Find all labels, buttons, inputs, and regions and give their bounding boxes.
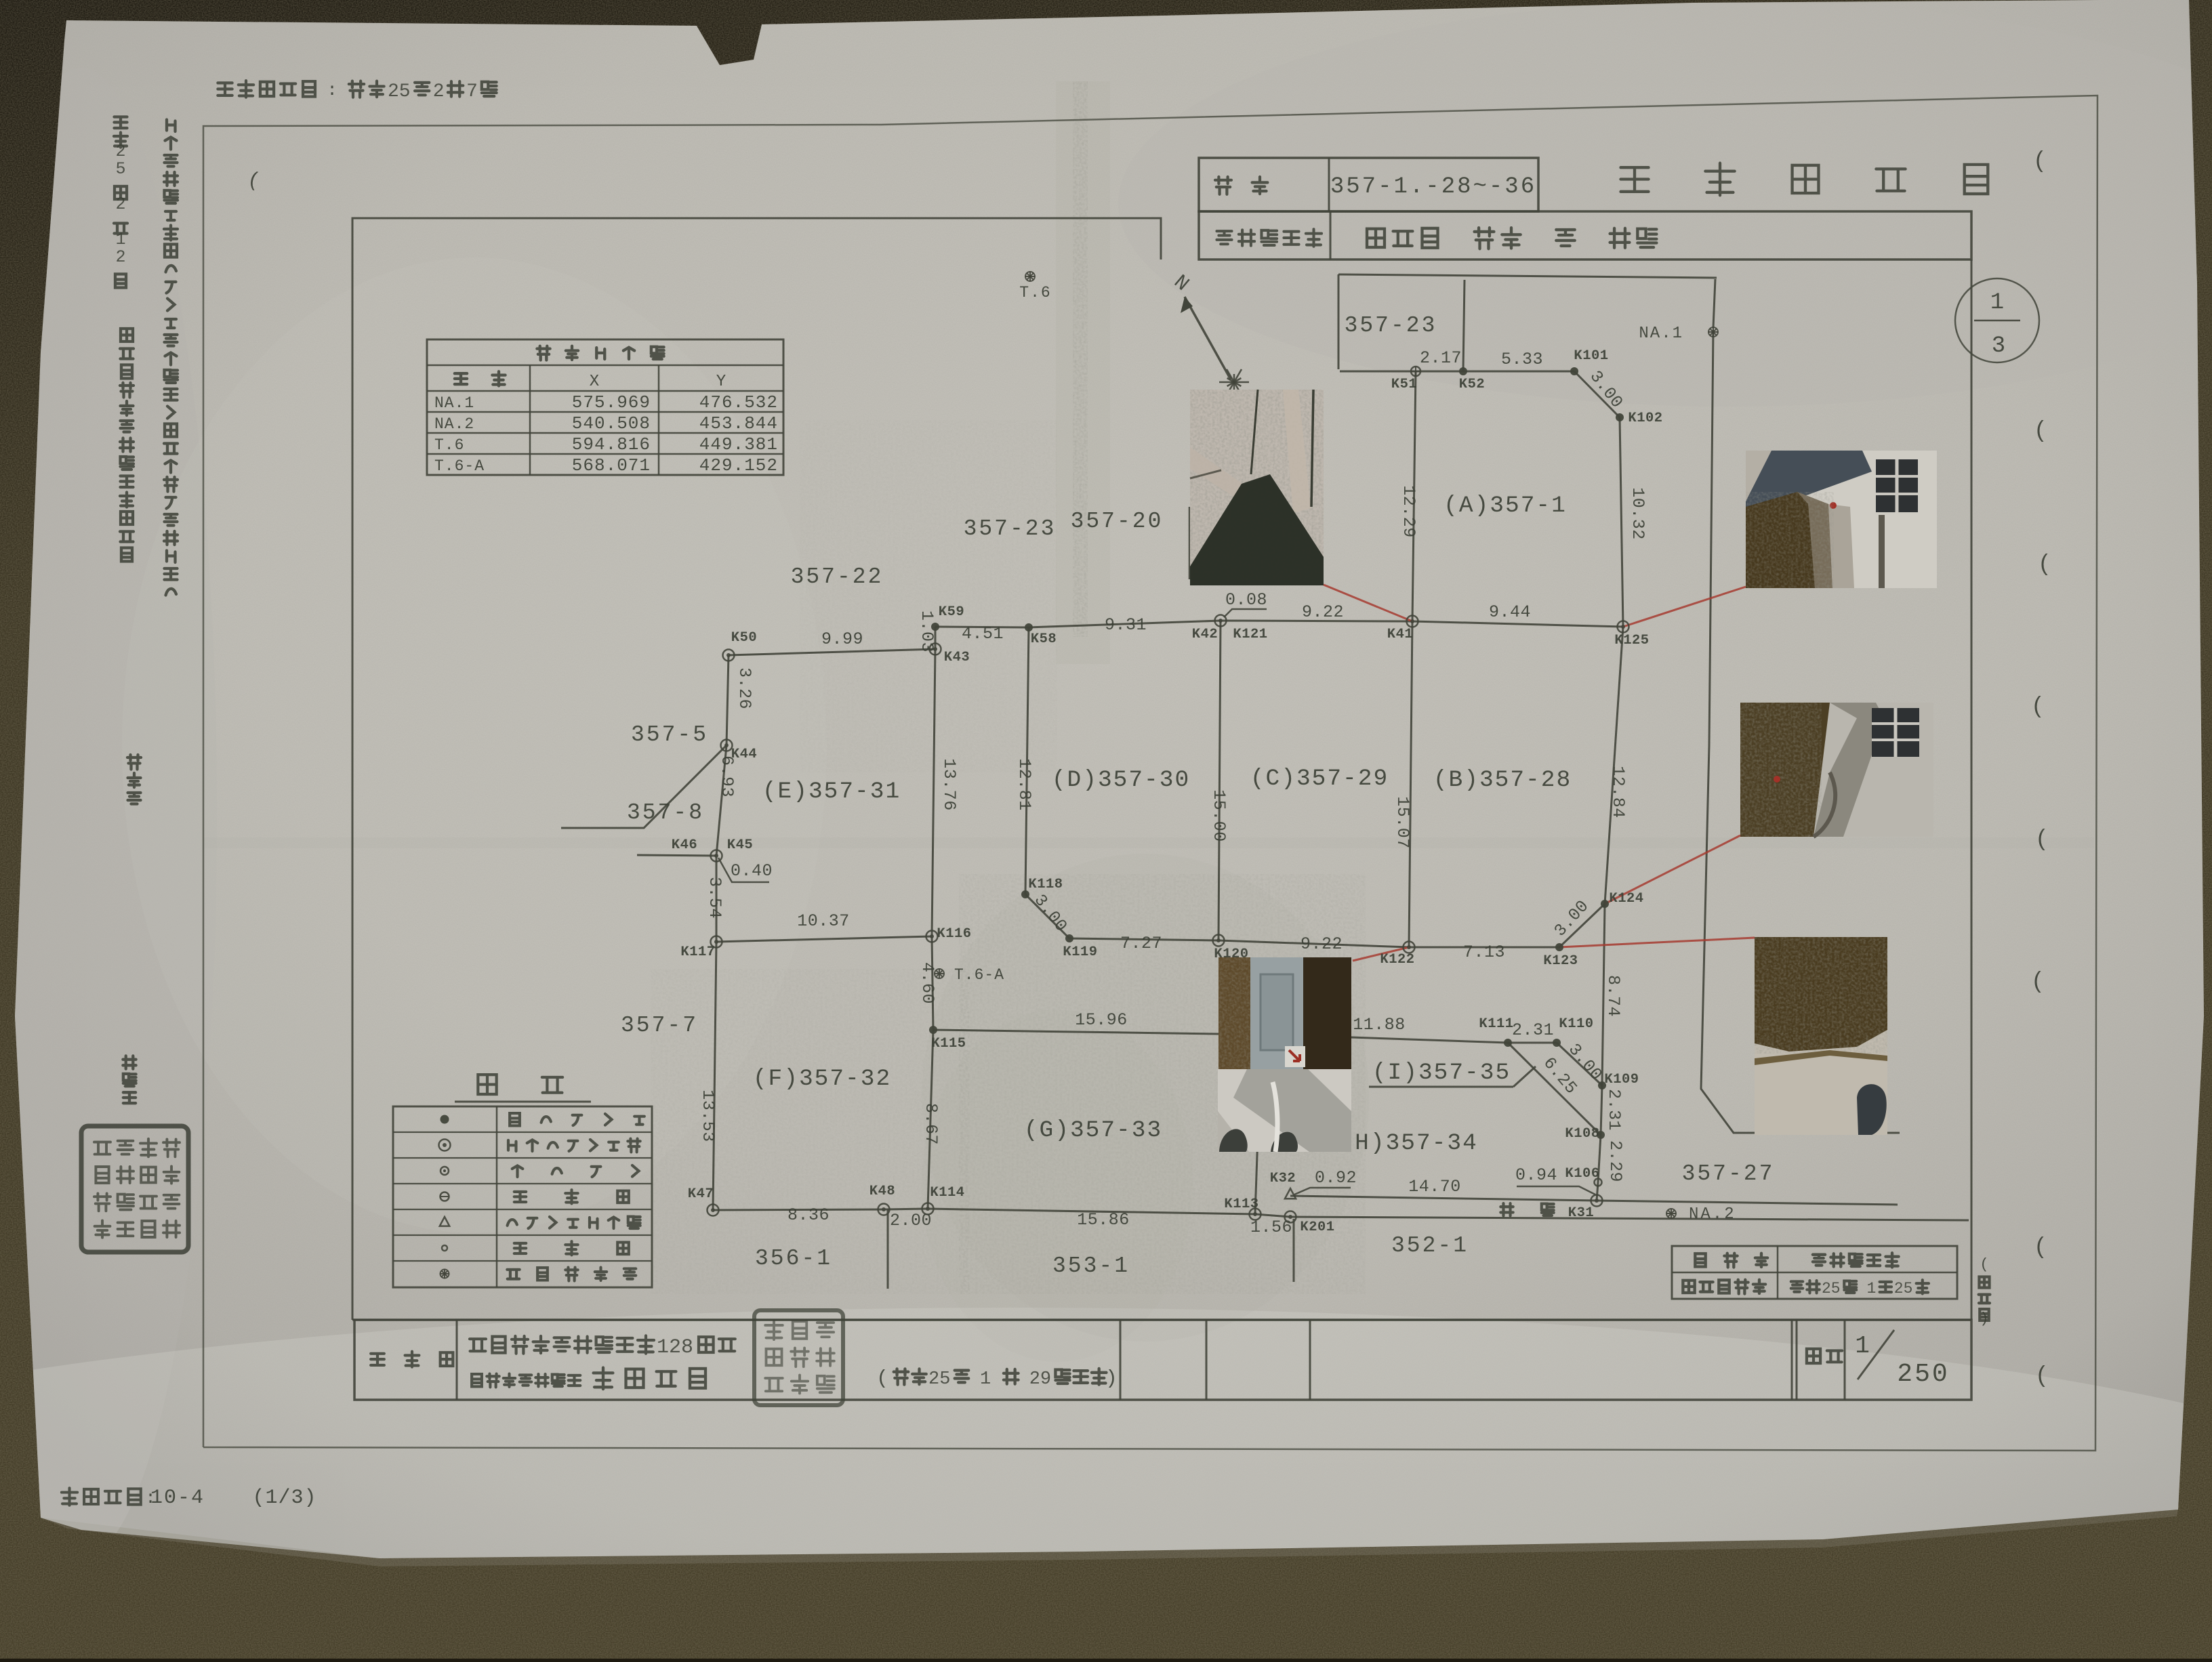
svg-text:1: 1 (1867, 1280, 1877, 1297)
svg-text:3.54: 3.54 (705, 877, 724, 919)
svg-text:357-20: 357-20 (1071, 509, 1164, 534)
svg-text:1: 1 (980, 1369, 991, 1390)
svg-text:(I)357-35: (I)357-35 (1372, 1060, 1511, 1086)
svg-text:15.96: 15.96 (1075, 1010, 1128, 1030)
svg-text:K113: K113 (1224, 1197, 1258, 1212)
svg-text:476.532: 476.532 (699, 392, 778, 413)
svg-text:K101: K101 (1574, 348, 1608, 364)
svg-text:2: 2 (115, 194, 125, 214)
svg-text:6.93: 6.93 (717, 755, 737, 797)
svg-text:25: 25 (928, 1369, 950, 1390)
svg-text:K41: K41 (1387, 627, 1413, 642)
svg-text:(: ( (2035, 147, 2043, 173)
svg-text:10.37: 10.37 (797, 911, 850, 931)
svg-text:2.31: 2.31 (1512, 1020, 1554, 1040)
svg-text:(1/3): (1/3) (252, 1487, 316, 1510)
svg-text:K123: K123 (1543, 953, 1578, 969)
svg-text:K51: K51 (1391, 377, 1417, 392)
svg-text:(: ( (876, 1367, 888, 1390)
svg-text:(D)357-30: (D)357-30 (1052, 767, 1190, 793)
svg-text:10-4: 10-4 (150, 1487, 205, 1510)
svg-text:2.29: 2.29 (1605, 1140, 1625, 1182)
svg-text:568.071: 568.071 (572, 455, 651, 476)
svg-text:7.27: 7.27 (1120, 934, 1162, 953)
svg-text:3.26: 3.26 (735, 667, 754, 709)
svg-text:15.07: 15.07 (1393, 796, 1412, 849)
svg-text:453.844: 453.844 (699, 413, 778, 434)
svg-text:356-1: 356-1 (755, 1246, 832, 1271)
svg-text:K109: K109 (1604, 1072, 1639, 1087)
svg-text:4.51: 4.51 (962, 624, 1004, 644)
svg-text:540.508: 540.508 (572, 413, 651, 434)
svg-text:14.70: 14.70 (1408, 1177, 1461, 1197)
svg-text:H)357-34: H)357-34 (1355, 1130, 1478, 1157)
svg-text:449.381: 449.381 (699, 434, 778, 455)
svg-text:25: 25 (1894, 1280, 1913, 1297)
svg-text:): ) (1105, 1367, 1117, 1390)
svg-text:250: 250 (1897, 1360, 1949, 1389)
svg-text:K46: K46 (672, 837, 697, 853)
svg-text:K31: K31 (1568, 1205, 1594, 1221)
svg-text:9.22: 9.22 (1300, 934, 1343, 954)
svg-text:K106: K106 (1565, 1166, 1599, 1182)
svg-text:NA.2: NA.2 (434, 415, 474, 433)
svg-text:8.36: 8.36 (787, 1205, 829, 1225)
svg-text:357-7: 357-7 (621, 1013, 698, 1038)
svg-text:9.99: 9.99 (821, 629, 863, 649)
svg-text:12.29: 12.29 (1399, 485, 1418, 538)
svg-text:1: 1 (1990, 290, 2004, 316)
svg-text:575.969: 575.969 (572, 392, 651, 413)
svg-text:K43: K43 (944, 650, 970, 665)
svg-text:3: 3 (1992, 333, 2005, 359)
svg-text:(G)357-33: (G)357-33 (1024, 1117, 1162, 1144)
svg-text:12.81: 12.81 (1015, 758, 1034, 811)
svg-text:(C)357-29: (C)357-29 (1250, 766, 1389, 792)
svg-text:(F)357-32: (F)357-32 (753, 1066, 891, 1092)
svg-text:K48: K48 (869, 1184, 895, 1199)
svg-text:K102: K102 (1628, 411, 1662, 426)
svg-text:T.6: T.6 (1019, 284, 1051, 302)
svg-text:(B)357-28: (B)357-28 (1433, 767, 1572, 793)
svg-text:K124: K124 (1609, 891, 1643, 907)
svg-text:(: ( (2033, 968, 2041, 993)
svg-text:K47: K47 (688, 1186, 714, 1202)
svg-text:2: 2 (433, 81, 445, 102)
svg-text:7: 7 (466, 81, 478, 102)
svg-text:5: 5 (115, 159, 125, 179)
svg-text:9.44: 9.44 (1489, 602, 1531, 622)
svg-text:25: 25 (1822, 1280, 1841, 1297)
svg-text:(: ( (2037, 825, 2045, 851)
svg-text:2.00: 2.00 (890, 1211, 932, 1230)
svg-text:25: 25 (388, 81, 411, 102)
svg-text:357-27: 357-27 (1682, 1161, 1775, 1186)
svg-text:13.76: 13.76 (939, 758, 959, 811)
svg-text:K32: K32 (1270, 1171, 1296, 1186)
svg-text:NA.1: NA.1 (434, 394, 474, 412)
svg-text:(: ( (1980, 1256, 1988, 1273)
svg-text:594.816: 594.816 (572, 434, 651, 455)
svg-text:7.13: 7.13 (1463, 942, 1505, 962)
svg-text:K45: K45 (727, 837, 753, 853)
svg-text:K52: K52 (1459, 377, 1485, 392)
svg-text:K42: K42 (1192, 627, 1218, 642)
svg-text:K115: K115 (931, 1036, 966, 1052)
svg-text:K117: K117 (680, 944, 715, 960)
svg-text:K121: K121 (1233, 627, 1267, 642)
svg-text:15.86: 15.86 (1077, 1210, 1130, 1230)
svg-text:K201: K201 (1300, 1220, 1334, 1235)
svg-text:(A)357-1: (A)357-1 (1443, 493, 1567, 519)
svg-text:K58: K58 (1031, 631, 1057, 647)
svg-text:13.53: 13.53 (698, 1089, 718, 1142)
svg-text:1.56: 1.56 (1250, 1218, 1292, 1237)
svg-text:357-23: 357-23 (1345, 313, 1437, 338)
svg-text:K108: K108 (1565, 1126, 1599, 1142)
svg-text:0.08: 0.08 (1225, 590, 1267, 610)
svg-text:NA.1: NA.1 (1639, 325, 1683, 343)
svg-text:5.33: 5.33 (1501, 350, 1543, 369)
svg-text:2.17: 2.17 (1420, 348, 1462, 368)
svg-text:2: 2 (115, 247, 125, 267)
svg-text:K122: K122 (1380, 952, 1414, 968)
svg-text:8.74: 8.74 (1603, 975, 1623, 1017)
svg-text:(: ( (2033, 692, 2041, 718)
svg-text:Y: Y (716, 373, 726, 391)
svg-text:352-1: 352-1 (1391, 1233, 1469, 1258)
svg-text:): ) (1980, 1310, 1988, 1327)
svg-text:K118: K118 (1028, 877, 1063, 892)
svg-text:1.03: 1.03 (917, 610, 937, 652)
svg-text:353-1: 353-1 (1052, 1253, 1130, 1279)
svg-text:K59: K59 (939, 604, 964, 620)
svg-text:1: 1 (1855, 1332, 1870, 1360)
svg-text:0.94: 0.94 (1515, 1165, 1557, 1185)
svg-text:357-5: 357-5 (631, 722, 708, 747)
svg-text:NA.2: NA.2 (1689, 1205, 1736, 1224)
svg-text:128: 128 (657, 1336, 693, 1359)
svg-text::: : (327, 80, 337, 100)
svg-text:29: 29 (1029, 1369, 1051, 1390)
svg-text:4.60: 4.60 (918, 962, 937, 1004)
svg-text:357-1.-28~-36: 357-1.-28~-36 (1330, 174, 1536, 200)
svg-text:(: ( (2040, 550, 2048, 576)
svg-text:K116: K116 (937, 926, 971, 942)
svg-text:K111: K111 (1479, 1016, 1513, 1032)
svg-text:(E)357-31: (E)357-31 (762, 778, 901, 805)
svg-text:1: 1 (115, 230, 125, 249)
svg-text:T.6-A: T.6-A (434, 457, 485, 475)
svg-text:357-8: 357-8 (627, 800, 704, 825)
svg-text:8.67: 8.67 (921, 1103, 941, 1145)
svg-text:(: ( (2036, 1233, 2044, 1259)
svg-text:2.31: 2.31 (1604, 1089, 1624, 1131)
svg-text:K110: K110 (1559, 1016, 1593, 1032)
svg-text:0.40: 0.40 (731, 861, 773, 881)
svg-text:429.152: 429.152 (699, 455, 778, 476)
svg-text:12.84: 12.84 (1608, 766, 1628, 818)
svg-text:K125: K125 (1614, 633, 1649, 648)
svg-text:9.31: 9.31 (1105, 615, 1147, 635)
svg-text:(: ( (2036, 417, 2044, 442)
svg-text:11.88: 11.88 (1353, 1015, 1406, 1035)
svg-text:357-23: 357-23 (964, 516, 1057, 541)
svg-text:9.22: 9.22 (1302, 602, 1344, 622)
svg-text:K50: K50 (731, 630, 757, 646)
svg-text:T.6: T.6 (434, 436, 464, 454)
svg-text:T.6-A: T.6-A (954, 966, 1004, 984)
svg-text:15.00: 15.00 (1209, 789, 1229, 842)
svg-text:0.92: 0.92 (1315, 1168, 1357, 1188)
svg-text:K119: K119 (1063, 944, 1097, 960)
svg-text:X: X (590, 373, 599, 391)
svg-text:357-22: 357-22 (791, 564, 884, 589)
svg-text:K114: K114 (930, 1185, 964, 1201)
svg-text:2: 2 (115, 142, 125, 161)
svg-text:10.32: 10.32 (1628, 487, 1647, 540)
svg-text:(: ( (2037, 1362, 2045, 1388)
